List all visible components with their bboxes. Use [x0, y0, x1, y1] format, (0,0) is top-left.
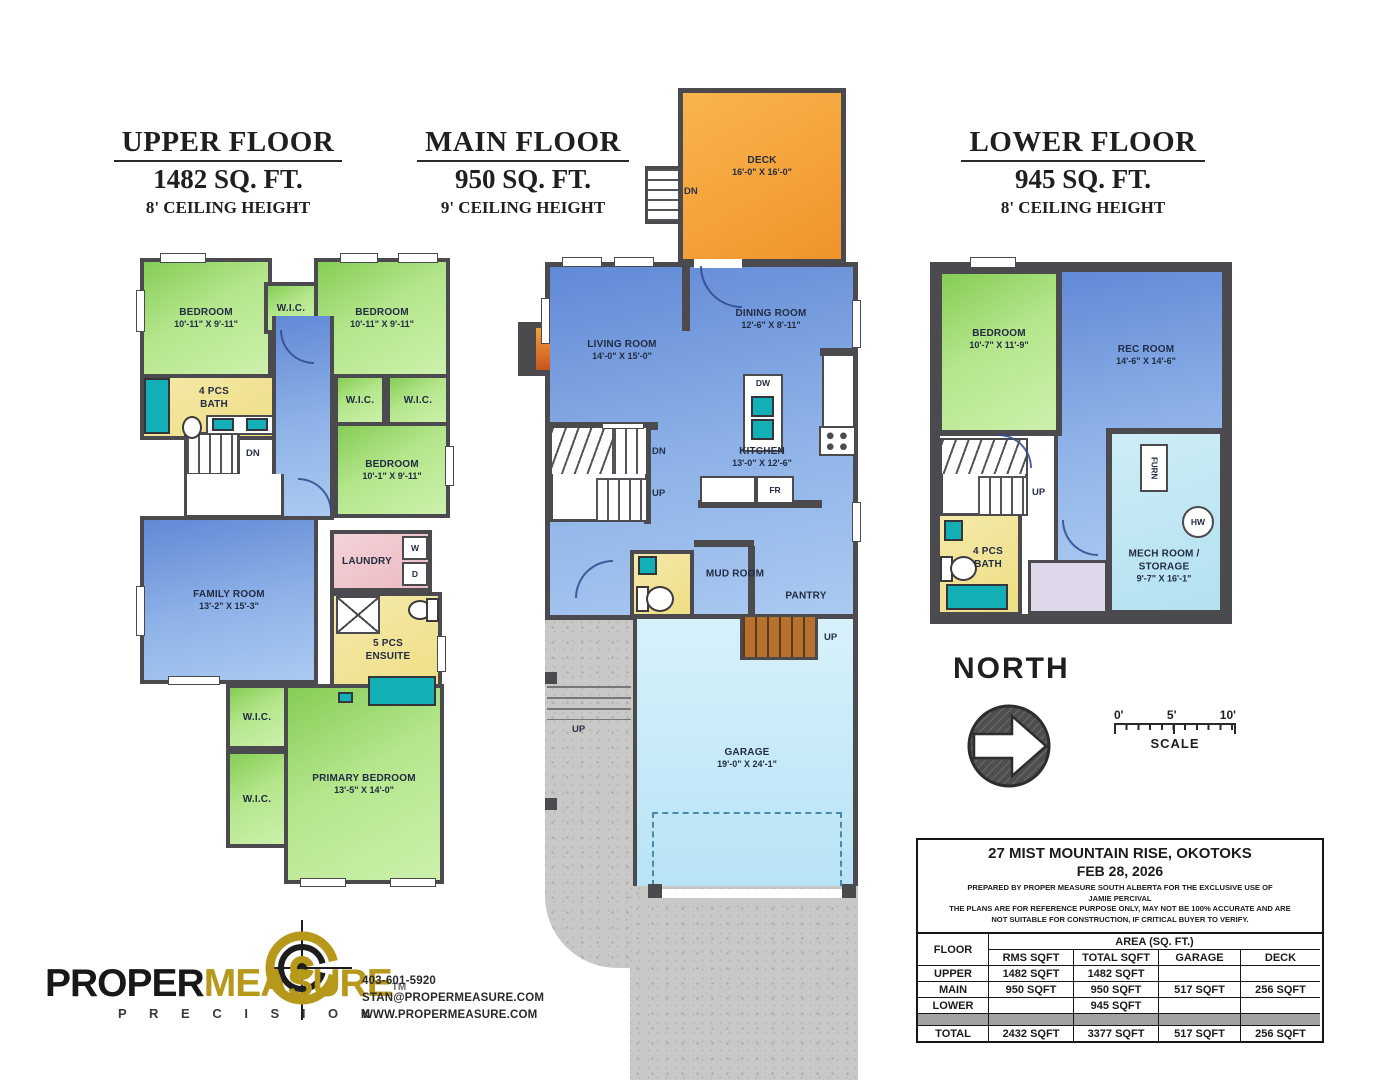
room-label: LIVING ROOM [587, 338, 656, 351]
main-up-label: UP [652, 488, 665, 499]
room-label: REC ROOM [1116, 343, 1176, 356]
driveway [630, 886, 858, 1080]
bathtub [368, 676, 436, 706]
pantry-label: PANTRY [785, 590, 826, 603]
sink [338, 692, 353, 703]
scale-bar: 0' 5' 10' SCALE [1114, 708, 1236, 751]
company-logo: PROPERMEASURETM [45, 962, 406, 1006]
window [614, 257, 654, 267]
room-dims: 16'-0" X 16'-0" [732, 167, 792, 178]
room-label: KITCHEN [732, 445, 792, 458]
main-floor-title: MAIN FLOOR [417, 126, 629, 162]
rec-room-label: REC ROOM 14'-6" X 14'-6" [1116, 343, 1176, 367]
sink [246, 418, 268, 431]
scale-tick-10: 10' [1220, 708, 1236, 722]
lower-floor-title: LOWER FLOOR [961, 126, 1204, 162]
main-stairs-up-flight [552, 428, 614, 474]
spacer-cell [918, 1013, 988, 1025]
room-label: PANTRY [785, 590, 826, 603]
room-label: MUD ROOM [706, 568, 764, 581]
toilet [182, 416, 202, 439]
row-main-rms: 950 SQFT [988, 981, 1073, 997]
hw-label: HW [1191, 517, 1205, 527]
room-upper-bedroom-right: BEDROOM 10'-11" X 9'-11" [314, 258, 450, 378]
deck-dn-label: DN [684, 186, 698, 197]
room-label: 4 PCS BATH [191, 385, 237, 411]
room-dims: 14'-6" X 14'-6" [1116, 356, 1176, 367]
upper-dn-label: DN [246, 448, 260, 459]
row-total-rms: 2432 SQFT [988, 1025, 1073, 1041]
room-label: DINING ROOM [735, 307, 806, 320]
window [437, 636, 446, 672]
room-upper-wic-l1: W.I.C. [226, 684, 288, 750]
scale-ruler [1114, 723, 1236, 734]
room-dims: 10'-7" X 11'-9" [969, 340, 1028, 351]
prepared-line2: JAMIE PERCIVAL [924, 894, 1316, 905]
room-label: 4 PCS BATH [966, 545, 1010, 571]
scale-word: SCALE [1114, 736, 1236, 751]
island-sink [751, 419, 774, 440]
scale-tick-5: 5' [1167, 708, 1177, 722]
row-main-floor: MAIN [918, 981, 988, 997]
dishwasher-label: DW [756, 378, 770, 388]
upper-bath-label: 4 PCS BATH [191, 385, 237, 411]
upper-floor-ceiling: 8' CEILING HEIGHT [78, 198, 378, 218]
door-jamb [648, 884, 662, 898]
room-label: BEDROOM [365, 458, 419, 471]
prepared-line1: PREPARED BY PROPER MEASURE SOUTH ALBERTA… [924, 883, 1316, 894]
room-dims: 14'-0" X 15'-0" [587, 351, 656, 362]
col-header-deck: DECK [1240, 949, 1320, 965]
room-label: GARAGE [717, 746, 777, 759]
room-upper-bedroom-left: BEDROOM 10'-11" X 9'-11" [140, 258, 272, 378]
room-dims: 10'-1" X 9'-11" [362, 471, 421, 482]
plan-date: FEB 28, 2026 [924, 863, 1316, 879]
wall [748, 546, 755, 620]
step-wall [545, 672, 557, 684]
room-label: W.I.C. [243, 793, 271, 806]
kitchen-label: KITCHEN 13'-0" X 12'-6" [732, 445, 792, 469]
window [852, 300, 861, 348]
row-total-total: 3377 SQFT [1073, 1025, 1158, 1041]
wall [682, 265, 690, 331]
steps-up-label: UP [572, 724, 585, 735]
garage-entry-stairs [740, 614, 818, 660]
floorplan-sheet: UPPER FLOOR 1482 SQ. FT. 8' CEILING HEIG… [0, 0, 1396, 1080]
garage-door-swing [652, 812, 842, 886]
spacer-cell [1073, 1013, 1158, 1025]
room-label: W.I.C. [277, 302, 305, 315]
upper-floor-heading: UPPER FLOOR 1482 SQ. FT. 8' CEILING HEIG… [78, 126, 378, 218]
wall [694, 540, 754, 547]
island-sink [751, 396, 774, 417]
dryer-label: D [412, 569, 418, 579]
room-dims: 19'-0" X 24'-1" [717, 759, 777, 770]
lower-bath-label: 4 PCS BATH [966, 545, 1010, 571]
dining-room-label: DINING ROOM 12'-6" X 8'-11" [735, 307, 806, 331]
window [390, 878, 436, 887]
window [398, 253, 438, 263]
north-arrow-icon [962, 698, 1058, 794]
room-upper-wic-l2: W.I.C. [226, 750, 288, 848]
row-lower-deck [1240, 997, 1320, 1013]
main-floor-heading: MAIN FLOOR 950 SQ. FT. 9' CEILING HEIGHT [373, 126, 673, 218]
room-upper-wic-right: W.I.C. [386, 374, 450, 426]
sink [212, 418, 234, 431]
room-upper-bedroom-mid: BEDROOM 10'-1" X 9'-11" [334, 422, 450, 518]
row-lower-rms [988, 997, 1073, 1013]
mud-room-label: MUD ROOM [706, 568, 764, 581]
furnace-label: FURN [1150, 457, 1159, 479]
lower-entry-landing [1028, 560, 1108, 614]
lower-floor-ceiling: 8' CEILING HEIGHT [933, 198, 1233, 218]
room-dims: 10'-11" X 9'-11" [174, 319, 238, 330]
room-label: MECH ROOM / [1128, 547, 1199, 560]
upper-floor-area: 1482 SQ. FT. [78, 164, 378, 195]
room-label: W.I.C. [243, 711, 271, 724]
door-jamb [842, 884, 856, 898]
col-header-total: TOTAL SQFT [1073, 949, 1158, 965]
contact-phone: 403-601-5920 [362, 973, 544, 990]
toilet [646, 586, 674, 612]
room-lower-bedroom: BEDROOM 10'-7" X 11'-9" [936, 268, 1062, 436]
room-upper-wic-mid: W.I.C. [334, 374, 386, 426]
kitchen-counter [700, 476, 756, 504]
pass-opening [602, 423, 644, 429]
room-dims: 10'-11" X 9'-11" [350, 319, 414, 330]
room-dims: 12'-6" X 8'-11" [735, 320, 806, 331]
area-grid: FLOOR AREA (SQ. FT.) RMS SQFT TOTAL SQFT… [918, 934, 1322, 1041]
room-label: BEDROOM [972, 327, 1026, 340]
row-lower-total: 945 SQFT [1073, 997, 1158, 1013]
window [541, 298, 550, 344]
row-lower-floor: LOWER [918, 997, 988, 1013]
contact-website: WWW.PROPERMEASURE.COM [362, 1007, 544, 1024]
sink [944, 520, 963, 541]
disclaimer-line1: THE PLANS ARE FOR REFERENCE PURPOSE ONLY… [924, 904, 1316, 915]
shower [336, 596, 380, 634]
living-room-label: LIVING ROOM 14'-0" X 15'-0" [587, 338, 656, 362]
hot-water-tank: HW [1182, 506, 1214, 538]
window [160, 253, 206, 263]
bathtub [144, 378, 170, 434]
garage-up-label: UP [824, 632, 837, 643]
room-label: BEDROOM [179, 306, 233, 319]
room-label: STORAGE [1128, 560, 1199, 573]
row-total-deck: 256 SQFT [1240, 1025, 1320, 1041]
col-header-rms: RMS SQFT [988, 949, 1073, 965]
step-wall [545, 798, 557, 810]
room-label: PRIMARY BEDROOM [312, 772, 416, 785]
property-address: 27 MIST MOUNTAIN RISE, OKOTOKS [924, 845, 1316, 862]
col-header-floor: FLOOR [918, 934, 988, 965]
row-upper-garage [1158, 965, 1240, 981]
row-main-deck: 256 SQFT [1240, 981, 1320, 997]
ensuite-label: 5 PCS ENSUITE [358, 637, 418, 663]
room-dims: 9'-7" X 16'-1" [1128, 573, 1199, 584]
spacer-cell [1240, 1013, 1320, 1025]
lower-floor-heading: LOWER FLOOR 945 SQ. FT. 8' CEILING HEIGH… [933, 126, 1233, 218]
room-dims: 13'-0" X 12'-6" [732, 458, 792, 469]
deck-stairs [645, 166, 681, 224]
lower-stairs-flight2 [978, 476, 1026, 514]
window [562, 257, 602, 267]
window [136, 290, 145, 332]
room-primary-bedroom: PRIMARY BEDROOM 13'-5" X 14'-0" [284, 684, 444, 884]
main-dn-label: DN [652, 446, 666, 457]
counter-right [822, 354, 855, 428]
info-table-header: 27 MIST MOUNTAIN RISE, OKOTOKS FEB 28, 2… [918, 840, 1322, 934]
window [136, 586, 145, 636]
room-label: W.I.C. [404, 394, 432, 407]
row-upper-deck [1240, 965, 1320, 981]
window [340, 253, 378, 263]
toilet-tank [426, 598, 439, 622]
lower-floor-area: 945 SQ. FT. [933, 164, 1233, 195]
room-dims: 13'-5" X 14'-0" [334, 785, 394, 796]
exterior-steps [547, 686, 631, 720]
bathtub [946, 584, 1008, 610]
row-upper-total: 1482 SQFT [1073, 965, 1158, 981]
row-main-total: 950 SQFT [1073, 981, 1158, 997]
logo-tagline: P R E C I S I O N [118, 1006, 380, 1021]
north-label: NORTH [953, 652, 1070, 686]
room-dims: 13'-2" X 15'-3" [199, 601, 259, 612]
washer: W [402, 536, 428, 560]
row-total-floor: TOTAL [918, 1025, 988, 1041]
row-upper-floor: UPPER [918, 965, 988, 981]
window [445, 446, 454, 486]
stove [819, 426, 856, 456]
main-floor-ceiling: 9' CEILING HEIGHT [373, 198, 673, 218]
main-stairs-turn [612, 428, 646, 474]
row-main-garage: 517 SQFT [1158, 981, 1240, 997]
washer-label: W [411, 543, 419, 553]
row-upper-rms: 1482 SQFT [988, 965, 1073, 981]
logo-proper: PROPER [45, 962, 204, 1005]
room-label: W.I.C. [346, 394, 374, 407]
driveway-walk [545, 620, 633, 968]
disclaimer-line2: NOT SUITABLE FOR CONSTRUCTION, IF CRITIC… [924, 915, 1316, 926]
sink [638, 556, 657, 575]
dryer: D [402, 562, 428, 586]
upper-stairs-landing [184, 474, 284, 518]
col-header-area: AREA (SQ. FT.) [988, 934, 1320, 949]
main-stairs-down-flight [596, 478, 646, 520]
col-header-garage: GARAGE [1158, 949, 1240, 965]
room-label: BEDROOM [355, 306, 409, 319]
row-total-garage: 517 SQFT [1158, 1025, 1240, 1041]
lower-up-label: UP [1032, 487, 1045, 498]
contact-email: STAN@PROPERMEASURE.COM [362, 990, 544, 1007]
room-label: 5 PCS ENSUITE [358, 637, 418, 663]
window [300, 878, 346, 887]
contact-info: 403-601-5920 STAN@PROPERMEASURE.COM WWW.… [362, 973, 544, 1024]
fridge: FR [756, 476, 794, 504]
spacer-cell [988, 1013, 1073, 1025]
window [168, 676, 220, 685]
room-label: LAUNDRY [342, 555, 392, 568]
upper-floor-title: UPPER FLOOR [114, 126, 343, 162]
room-label: DECK [747, 154, 776, 167]
deck: DECK 16'-0" X 16'-0" [678, 88, 846, 264]
furnace: FURN [1140, 444, 1168, 492]
room-family: FAMILY ROOM 13'-2" X 15'-3" [140, 516, 318, 684]
scale-tick-0: 0' [1114, 708, 1124, 722]
info-table: 27 MIST MOUNTAIN RISE, OKOTOKS FEB 28, 2… [916, 838, 1324, 1043]
row-lower-garage [1158, 997, 1240, 1013]
garage-door-opening [658, 889, 846, 898]
main-floor-area: 950 SQ. FT. [373, 164, 673, 195]
window [970, 257, 1016, 268]
window [852, 502, 861, 542]
mech-room-label: MECH ROOM / STORAGE 9'-7" X 16'-1" [1128, 547, 1199, 584]
room-label: FAMILY ROOM [193, 588, 265, 601]
garage-label: GARAGE 19'-0" X 24'-1" [717, 746, 777, 770]
fridge-label: FR [769, 485, 780, 495]
spacer-cell [1158, 1013, 1240, 1025]
